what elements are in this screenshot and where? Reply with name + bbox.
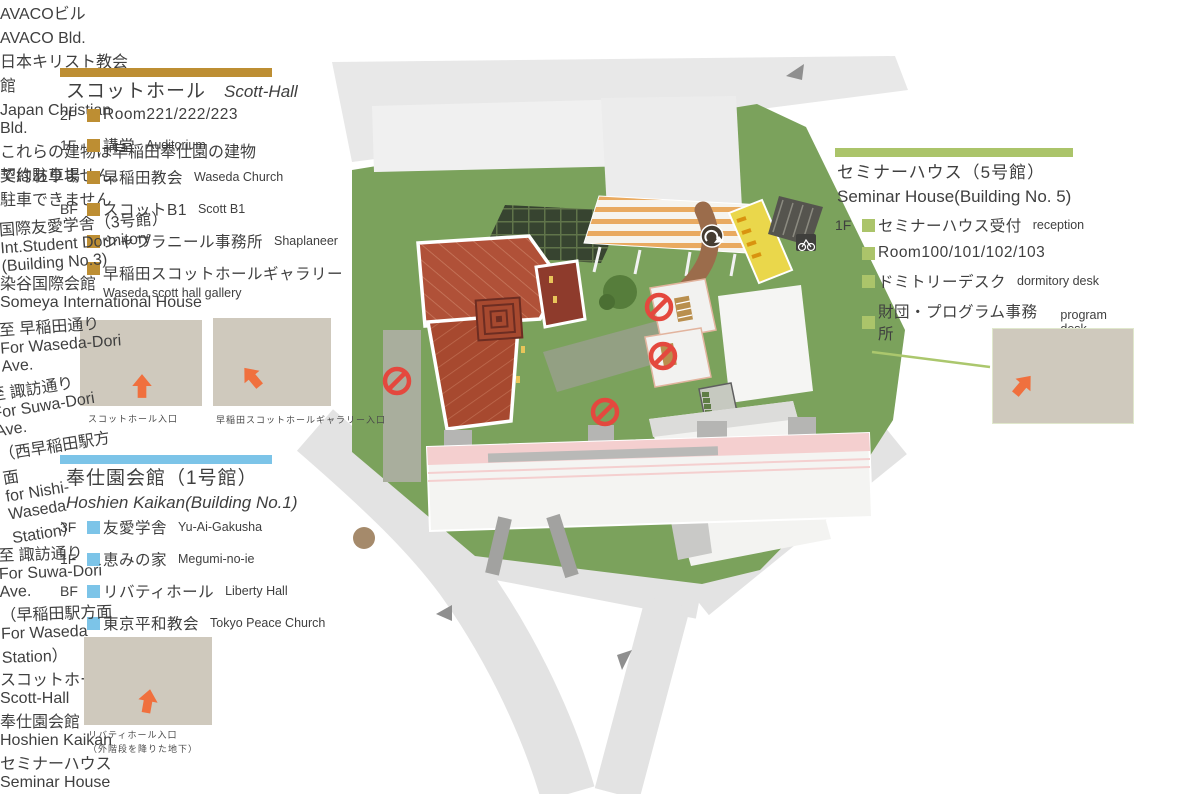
legend-title-jp: スコットホール — [66, 76, 206, 103]
legend-title-jp: セミナーハウス（5号館） — [837, 158, 1071, 183]
photo-gallery-entrance — [213, 318, 331, 406]
building-avaco — [372, 99, 635, 172]
legend-bullet — [862, 219, 875, 232]
photo-seminar-house-entrance — [992, 328, 1134, 424]
arrow-left-icon — [436, 605, 452, 621]
legend-row: 1F セミナーハウス受付 reception — [835, 214, 1135, 236]
legend-bullet — [862, 275, 875, 288]
legend-title-en: Scott-Hall — [224, 82, 298, 102]
legend-bullet — [87, 109, 100, 122]
entrance-arrow-icon — [129, 369, 155, 403]
street-label-waseda-dori: 至 早稲田通り For Waseda-Dori Ave. — [0, 307, 137, 376]
entrance-arrow-icon — [1002, 364, 1044, 407]
legend-row: 早稲田教会 Waseda Church — [60, 166, 360, 188]
photo-caption: 早稲田スコットホールギャラリー入口 — [216, 413, 386, 426]
legend-title-en: Seminar House(Building No. 5) — [837, 187, 1071, 207]
bicycle-icon — [796, 234, 816, 251]
legend-row: 1F 講堂 Auditorium — [60, 134, 360, 156]
legend-title: セミナーハウス（5号館） Seminar House(Building No. … — [837, 158, 1071, 207]
inner-lane — [383, 330, 421, 482]
legend-bullet — [862, 316, 875, 329]
photo-caption: リバティホール入口 （外階段を降りた地下） — [88, 729, 198, 756]
legend-title: スコットホール Scott-Hall — [66, 76, 298, 103]
legend-bullet — [87, 139, 100, 152]
campus-map-poster: スコットホール Scott-Hall 2F Room221/222/223 1F… — [0, 0, 1191, 794]
street-label-suwa-east: 至 諏訪通り For Suwa-Dori Ave. （早稲田駅方面 For Wa… — [0, 538, 114, 668]
legend-bullet — [87, 171, 100, 184]
legend-row: Room100/101/102/103 — [835, 244, 1135, 262]
building-japan-christian — [601, 96, 742, 211]
legend-bullet — [862, 247, 875, 260]
turn-arrow-icon — [701, 225, 724, 247]
entrance-arrow-icon — [132, 682, 164, 720]
legend-row: 2F Room221/222/223 — [60, 106, 360, 124]
accent-bar — [835, 148, 1073, 157]
legend-row: ドミトリーデスク dormitory desk — [835, 270, 1135, 292]
